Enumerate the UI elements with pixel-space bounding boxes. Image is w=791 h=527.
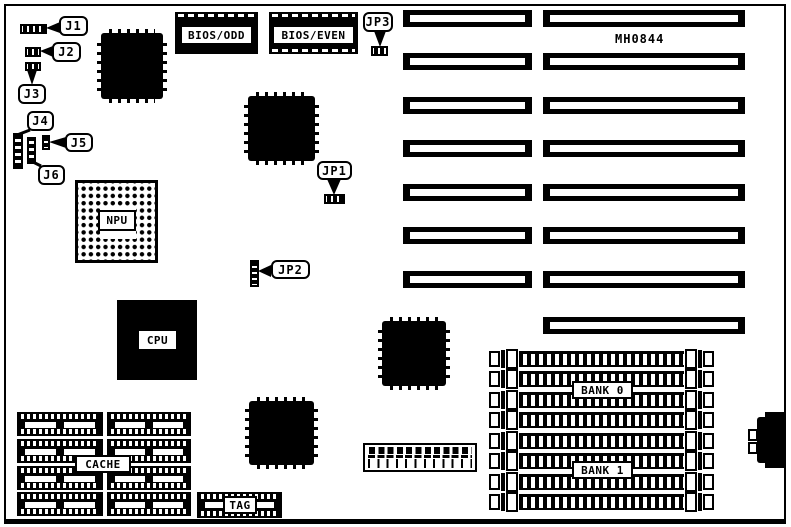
j4-header [13, 133, 23, 169]
simm-socket-8 [489, 492, 714, 512]
isa-slot-short-6 [403, 227, 532, 244]
bank1-label: BANK 1 [572, 461, 633, 479]
jp1-jumper [324, 194, 345, 204]
isa-slot-short-1 [403, 10, 532, 27]
bank1-label-text: BANK 1 [581, 464, 624, 477]
isa-slot-long-8 [543, 317, 745, 334]
isa-slot-long-6 [543, 227, 745, 244]
jp3-label: JP3 [363, 12, 393, 32]
j3-jumper [25, 62, 41, 71]
jp1-label: JP1 [317, 161, 352, 180]
isa-slot-long-3 [543, 97, 745, 114]
keyboard-connector-base [765, 412, 784, 468]
j6-label: J6 [38, 165, 65, 185]
j1-label: J1 [59, 16, 88, 36]
isa-slot-short-4 [403, 140, 532, 157]
simm-socket-1 [489, 349, 714, 369]
power-connector-bar [368, 455, 472, 458]
isa-slot-long-4 [543, 140, 745, 157]
j5-label-text: J5 [71, 136, 87, 150]
j5-label: J5 [65, 133, 93, 152]
isa-slot-long-1 [543, 10, 745, 27]
cpu-label: CPU [137, 329, 178, 351]
isa-slot-long-5 [543, 184, 745, 201]
board-id-value: MH0844 [615, 32, 664, 46]
isa-slot-short-5 [403, 184, 532, 201]
j2-jumper [25, 47, 41, 57]
tag-label: TAG [223, 496, 257, 514]
power-connector-pins [368, 447, 472, 454]
bank0-label-text: BANK 0 [581, 384, 624, 397]
jp3-label-text: JP3 [366, 15, 391, 29]
jp1-label-text: JP1 [322, 164, 347, 178]
j1-jumper [20, 24, 47, 34]
qfp-chip-1 [101, 33, 163, 99]
bios-even-label-text: BIOS/EVEN [281, 29, 345, 42]
cache-chip-7 [17, 492, 103, 516]
cache-chip-1 [17, 412, 103, 436]
bios-even-socket-mark-top [272, 14, 355, 17]
cache-label-text: CACHE [85, 458, 121, 471]
keyboard-connector-pin-top [748, 429, 758, 441]
isa-slot-short-7 [403, 271, 532, 288]
j1-label-text: J1 [65, 19, 81, 33]
keyboard-connector-pin-bottom [748, 442, 758, 454]
j4-label-text: J4 [32, 114, 48, 128]
bios-odd-label-text: BIOS/ODD [188, 29, 245, 42]
jp3-jumper [371, 46, 388, 56]
cache-chip-2 [107, 412, 191, 436]
tag-label-text: TAG [229, 499, 250, 512]
isa-slot-short-2 [403, 53, 532, 70]
power-connector [363, 443, 477, 472]
j4-label: J4 [27, 111, 54, 131]
npu-label-text: NPU [106, 214, 127, 227]
jp2-jumper [250, 260, 259, 287]
bios-odd-label: BIOS/ODD [180, 25, 253, 45]
board-id-text: MH0844 [615, 32, 664, 46]
j5-jumper [42, 135, 50, 150]
jp2-label: JP2 [271, 260, 310, 279]
simm-socket-4 [489, 410, 714, 430]
j6-label-text: J6 [43, 168, 59, 182]
npu-label: NPU [98, 210, 136, 231]
cpu-label-text: CPU [147, 334, 168, 347]
j6-header [27, 137, 36, 164]
j2-label: J2 [52, 42, 81, 62]
bios-even-label: BIOS/EVEN [272, 25, 355, 45]
cache-label: CACHE [75, 455, 131, 473]
power-connector-holes [368, 459, 472, 468]
j2-label-text: J2 [58, 45, 74, 59]
qfp-chip-4 [249, 401, 314, 465]
isa-slot-long-7 [543, 271, 745, 288]
isa-slot-long-2 [543, 53, 745, 70]
isa-slot-short-3 [403, 97, 532, 114]
bank0-label: BANK 0 [572, 381, 633, 399]
j3-label: J3 [18, 84, 46, 104]
jp2-label-text: JP2 [278, 263, 303, 277]
simm-socket-5 [489, 431, 714, 451]
j3-label-text: J3 [24, 87, 40, 101]
qfp-chip-3 [382, 321, 446, 386]
bios-even-socket-mark-bottom [272, 49, 355, 52]
qfp-chip-2 [248, 96, 315, 161]
bios-odd-socket-mark [178, 14, 255, 17]
cache-chip-8 [107, 492, 191, 516]
